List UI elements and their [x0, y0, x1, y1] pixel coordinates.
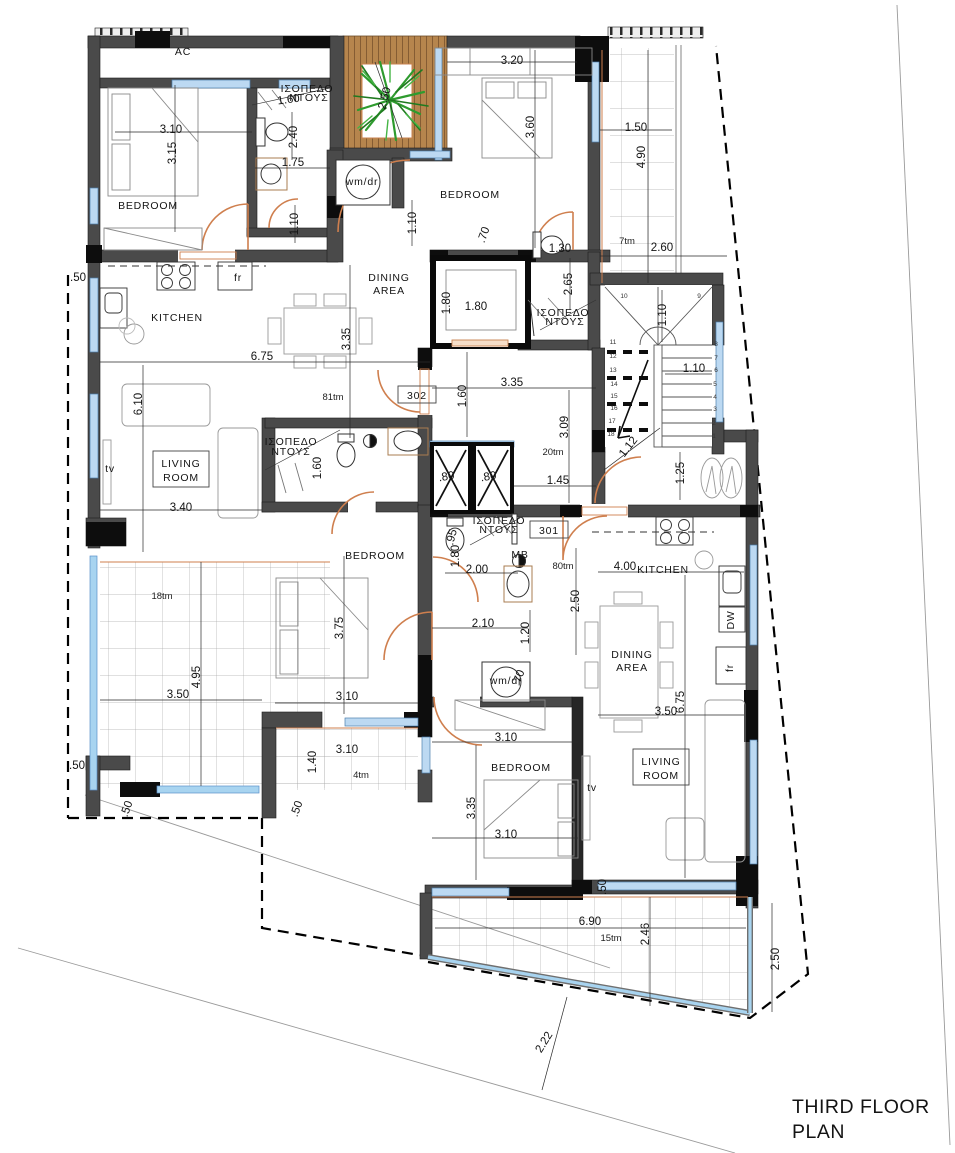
dining-table-left: [268, 294, 372, 368]
dimension-label: 3.60: [525, 116, 537, 138]
dimension-label: 2.50: [570, 590, 582, 612]
dimension-label: .50: [69, 760, 85, 772]
dimension-label: 1.80: [441, 292, 453, 314]
dimension-label: 4.95: [191, 666, 203, 688]
stair-step-number: 13: [609, 367, 617, 374]
dimension-label: 6.75: [251, 351, 273, 363]
fridge-left: fr: [234, 272, 242, 284]
stair-step-number: 4: [713, 394, 717, 401]
planter: [343, 36, 447, 160]
level-shower-mr-2: ΝΤΟΥΣ: [479, 524, 518, 536]
dimension-label: 4.00: [614, 561, 636, 573]
dimension-label: 1.60: [277, 93, 301, 108]
kitchen-right: KITCHEN: [637, 564, 689, 576]
stair-step-number: 10: [620, 293, 628, 300]
door-bedroom-tl: [202, 204, 248, 250]
stair-step-number: 12: [609, 353, 617, 360]
setback-dashed-lines: [68, 46, 808, 1018]
drawing-title-line2: PLAN: [792, 1121, 845, 1143]
living-room-left-1: LIVING: [161, 458, 200, 470]
living-room-left-2: ROOM: [163, 472, 199, 484]
dimension-label: .50: [289, 799, 306, 818]
dimension-label: 1.60: [312, 457, 324, 479]
toilet-icon: [337, 443, 355, 467]
dimension-label: 3.50: [655, 706, 677, 718]
dimension-label: 3.35: [341, 328, 353, 350]
dining-area-right-2: AREA: [616, 662, 648, 674]
area-label: 7tm: [619, 236, 635, 247]
balcony-small-tiles: [276, 728, 418, 790]
sofa-icon: [705, 700, 745, 862]
dimension-label: 6.90: [579, 916, 601, 928]
dimension-label: .50: [70, 272, 86, 284]
dimension-label: .50: [597, 879, 609, 895]
floor-plan-canvas: ACBEDROOMKITCHENDININGAREALIVINGROOMtvBE…: [0, 0, 955, 1153]
stair-step-number: 17: [608, 418, 616, 425]
sink-icon: [723, 571, 741, 593]
stair-step-number: 14: [610, 381, 618, 388]
dining-area-right-1: DINING: [611, 649, 653, 661]
mb-label: ΜΒ: [511, 549, 528, 561]
stair-step-number: 1: [712, 433, 716, 440]
dimension-label: 1.80: [450, 545, 462, 567]
door-apartment-301: [563, 516, 607, 560]
dimension-label: 1.80: [465, 301, 487, 313]
dimension-label: 3.15: [167, 142, 179, 164]
dimension-label: 2.46: [640, 923, 652, 945]
dimension-label: 3.20: [501, 55, 523, 67]
fridge-right: fr: [724, 664, 736, 672]
area-label: 15tm: [600, 933, 621, 944]
stair-step-number: 2: [712, 420, 716, 427]
stair-step-number: 16: [610, 405, 618, 412]
area-label: 18tm: [151, 591, 172, 602]
dimension-label: 3.50: [167, 689, 189, 701]
dimension-label: 1.40: [307, 751, 319, 773]
area-label: 81tm: [322, 392, 343, 403]
dimension-label: 3.10: [160, 124, 182, 136]
dimension-label: 3.35: [466, 797, 478, 819]
balcony-bottom-right-tiles: [430, 897, 748, 1010]
dining-area-left-1: DINING: [368, 272, 410, 284]
sink-icon: [261, 164, 281, 184]
stair-step-number: 6: [714, 367, 718, 374]
area-label: 80tm: [552, 561, 573, 572]
bedroom-mid-left: BEDROOM: [345, 550, 405, 562]
stair-step-number: 9: [697, 293, 701, 300]
washer-dryer-top: wm/dr: [345, 176, 379, 188]
floor-plan-drawing: ACBEDROOMKITCHENDININGAREALIVINGROOMtvBE…: [0, 0, 955, 1153]
window: [172, 80, 250, 88]
apartment-301: 301: [539, 525, 559, 537]
ac-label: AC: [175, 46, 191, 58]
stair-step-number: 11: [610, 339, 617, 346]
dimension-label: 1.30: [549, 243, 571, 255]
dimension-label: 3.75: [334, 617, 346, 639]
dimension-label: .50: [119, 799, 136, 818]
dimension-label: 2.60: [651, 242, 673, 254]
dimension-label: 2.40: [288, 126, 300, 148]
stair-step-number: 5: [713, 381, 717, 388]
drawing-title-line1: THIRD FLOOR: [792, 1096, 930, 1118]
dimension-label: 1.20: [520, 622, 532, 644]
dimension-label: 2.50: [770, 948, 782, 970]
bedroom-top-right: BEDROOM: [440, 189, 500, 201]
tv-left: tv: [105, 463, 115, 475]
sink-icon: [507, 571, 529, 597]
dining-area-left-2: AREA: [373, 285, 405, 297]
dimension-label: 2.10: [472, 618, 494, 630]
stair-plant-sketch: [701, 458, 742, 498]
level-shower-ml-2: ΝΤΟΥΣ: [271, 446, 310, 458]
dimension-label: 3.10: [336, 691, 358, 703]
level-shower-tr-2: ΝΤΟΥΣ: [545, 316, 584, 328]
living-room-right-2: ROOM: [643, 770, 679, 782]
dimension-label: 2.65: [563, 273, 575, 295]
dimension-label: 3.10: [336, 744, 358, 756]
bedroom-top-left: BEDROOM: [118, 200, 178, 212]
dishwasher-right: DW: [725, 610, 737, 629]
dimension-label: 6.10: [133, 393, 145, 415]
dimension-label: 2.00: [466, 564, 488, 576]
living-room-right-1: LIVING: [641, 756, 680, 768]
sink-icon: [105, 293, 122, 313]
dimension-label: .70: [476, 225, 493, 244]
stair-step-number: 7: [714, 355, 718, 362]
dimension-label: 1.10: [289, 213, 301, 235]
dimension-label: 1.60: [457, 385, 469, 407]
dimension-label: 3.10: [495, 829, 517, 841]
area-label: 20tm: [542, 447, 563, 458]
dimension-label: 1.25: [675, 462, 687, 484]
apartment-302: 302: [407, 390, 427, 402]
dimension-label: 4.90: [636, 146, 648, 168]
bedroom-bottom: BEDROOM: [491, 762, 551, 774]
toilet-icon: [256, 118, 265, 146]
floor-drain-icon: [370, 435, 377, 448]
dimension-label: 3.35: [501, 377, 523, 389]
dimension-label: 1.75: [282, 157, 304, 169]
tv-right: tv: [587, 782, 597, 794]
dimension-label: 1.50: [625, 122, 647, 134]
dimension-label: 6.75: [675, 691, 687, 713]
stair-step-number: 3: [713, 406, 717, 413]
kitchen-left: KITCHEN: [151, 312, 203, 324]
dimension-label: 3.40: [170, 502, 192, 514]
dimension-label: 1.10: [683, 363, 705, 375]
dimension-label: 1.10: [657, 304, 669, 326]
bed-top-left: [104, 88, 202, 250]
dimension-label: 1.10: [407, 212, 419, 234]
title-block: THIRD FLOOR PLAN: [792, 1096, 930, 1143]
stair-step-number: 18: [607, 431, 615, 438]
stair-step-number: 15: [610, 393, 618, 400]
area-label: 4tm: [353, 770, 369, 781]
sink-icon: [394, 431, 422, 451]
dimension-label: 3.10: [495, 732, 517, 744]
dimension-label: 3.09: [559, 416, 571, 438]
dimension-label: 1.45: [547, 475, 569, 487]
stair-step-number: 8: [714, 341, 718, 348]
